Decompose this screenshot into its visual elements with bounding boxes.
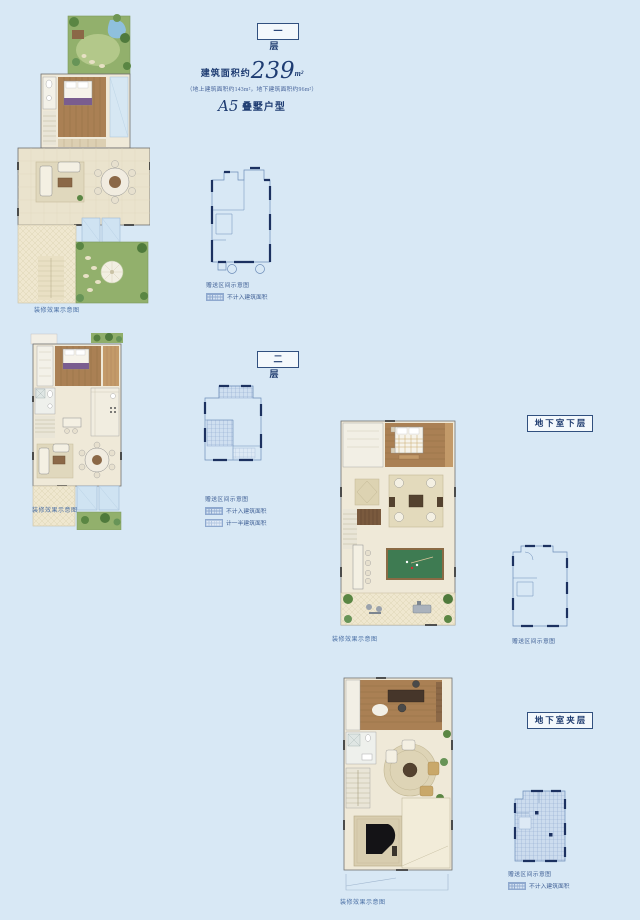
legend-row: 不计入建筑面积 [206,292,268,301]
unit-type-line: A5 叠墅户型 [150,96,354,114]
area-value: 239 [251,58,295,84]
level1-schematic [204,166,280,278]
legend-row: 不计入建筑面积 [508,881,570,890]
legend-row-label: 不计入建筑面积 [226,506,267,515]
basement-lower-caption: 装修效果示意图 [332,634,378,643]
basement-mezzanine-rendered-plan [336,670,458,896]
basement-mezzanine-legend-title: 赠送区间示意图 [508,869,570,878]
basement-lower-legend: 赠送区间示意图 [512,636,555,645]
hatch-light-swatch [205,519,223,527]
basement-lower-outline-diagram [503,538,578,633]
level2-schematic [199,384,269,469]
level1-outline-diagram [204,166,280,278]
basement-mezzanine-outline-diagram [505,783,577,868]
level2-legend-title: 赠送区间示意图 [205,494,267,503]
legend-row: 计一半建筑面积 [205,518,267,527]
level2-plan-illustration [27,332,127,530]
level1-legend: 赠送区间示意图 不计入建筑面积 [206,280,268,301]
level1-rendered-plan [14,12,150,305]
level2-legend: 赠送区间示意图 不计入建筑面积 计一半建筑面积 [205,494,267,527]
basement-lower-label-box: 地下室下层 [527,415,593,432]
basement-mezzanine-legend: 赠送区间示意图 不计入建筑面积 [508,869,570,890]
basement-lower-rendered-plan [325,417,460,632]
level2-caption: 装修效果示意图 [32,505,78,514]
level2-label-box: 二层 [257,351,299,368]
basement-mezzanine-label-box: 地下室夹层 [527,712,593,729]
legend-row-label: 不计入建筑面积 [227,292,268,301]
basement-lower-schematic [503,538,578,633]
level1-legend-title: 赠送区间示意图 [206,280,268,289]
basement-lower-legend-title: 赠送区间示意图 [512,636,555,645]
legend-row-label: 不计入建筑面积 [529,881,570,890]
level1-caption: 装修效果示意图 [34,305,80,314]
level1-label-box: 一层 [257,23,299,40]
basement-mezzanine-plan-illustration [336,670,458,896]
floorplan-brochure-page: 一层 建筑面积约239m² （地上建筑面积约143m²，地下建筑面积约96m²）… [0,0,640,920]
area-note: （地上建筑面积约143m²，地下建筑面积约96m²） [150,84,354,93]
level2-outline-diagram [199,384,269,469]
hatch-dense-swatch [508,882,526,890]
basement-mezzanine-caption: 装修效果示意图 [340,897,386,906]
building-area-line: 建筑面积约239m² [150,56,354,82]
hatch-dense-swatch [206,293,224,301]
level2-rendered-plan [27,332,127,530]
hatch-dense-swatch [205,507,223,515]
basement-mezzanine-schematic [505,783,577,868]
basement-lower-plan-illustration [325,417,460,632]
legend-row: 不计入建筑面积 [205,506,267,515]
unit-type-code: A5 [218,97,238,115]
unit-type-name: 叠墅户型 [242,102,286,113]
area-summary: 建筑面积约239m² （地上建筑面积约143m²，地下建筑面积约96m²） A5… [150,56,354,114]
legend-row-label: 计一半建筑面积 [226,518,267,527]
level1-plan-illustration [14,12,150,305]
